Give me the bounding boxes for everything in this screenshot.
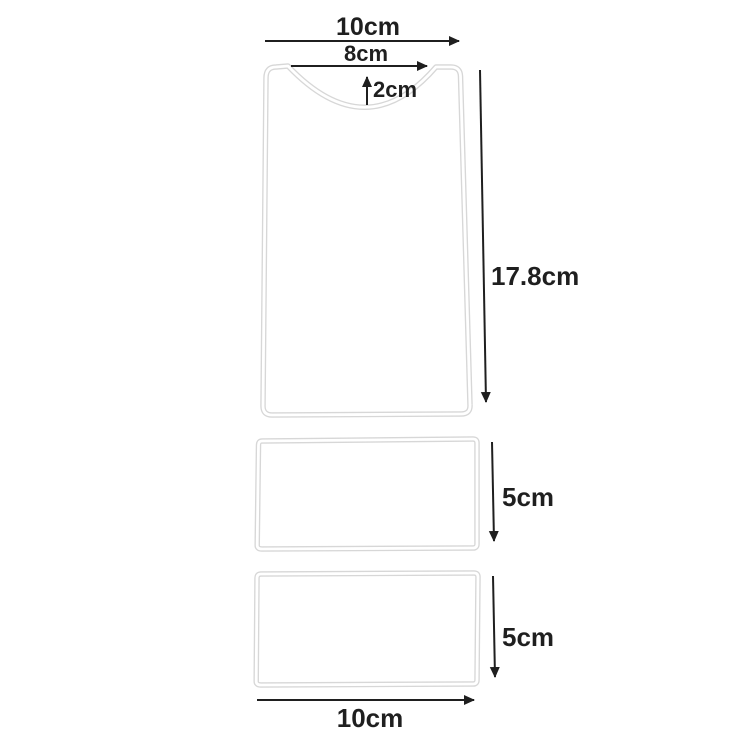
bottom-strip-outline-core — [256, 573, 478, 685]
dim-body-height-label: 17.8cm — [491, 261, 579, 291]
dim-notch-depth-label: 2cm — [373, 77, 417, 102]
dim-bottom-strip-height-label: 5cm — [502, 622, 554, 652]
dim-notch-width: 8cm — [291, 41, 427, 66]
bottom-strip — [256, 573, 478, 685]
dim-base-width: 10cm — [257, 700, 474, 733]
dim-top-width: 10cm — [265, 13, 459, 41]
dimension-diagram-svg: 10cm 8cm 2cm 17.8cm 5cm 5cm — [0, 0, 750, 750]
main-panel-outline-core — [263, 66, 470, 415]
bottom-strip-outline — [256, 573, 478, 685]
dim-bottom-strip-height-arrow — [493, 576, 495, 677]
dim-top-width-label: 10cm — [336, 13, 400, 41]
middle-strip-outline — [257, 439, 477, 549]
product-dimension-diagram: 10cm 8cm 2cm 17.8cm 5cm 5cm — [0, 0, 750, 750]
dim-middle-strip-height-arrow — [492, 442, 494, 541]
main-panel — [263, 66, 470, 415]
dim-middle-strip-height-label: 5cm — [502, 482, 554, 512]
dim-notch-width-label: 8cm — [344, 41, 388, 66]
middle-strip-outline-core — [257, 439, 477, 549]
middle-strip — [257, 439, 477, 549]
dim-notch-depth: 2cm — [367, 77, 417, 105]
main-panel-outline — [263, 66, 470, 415]
dim-body-height: 17.8cm — [480, 70, 579, 402]
dim-middle-strip-height: 5cm — [492, 442, 554, 541]
dim-body-height-arrow — [480, 70, 486, 402]
dim-bottom-strip-height: 5cm — [493, 576, 554, 677]
dim-base-width-label: 10cm — [337, 703, 404, 733]
